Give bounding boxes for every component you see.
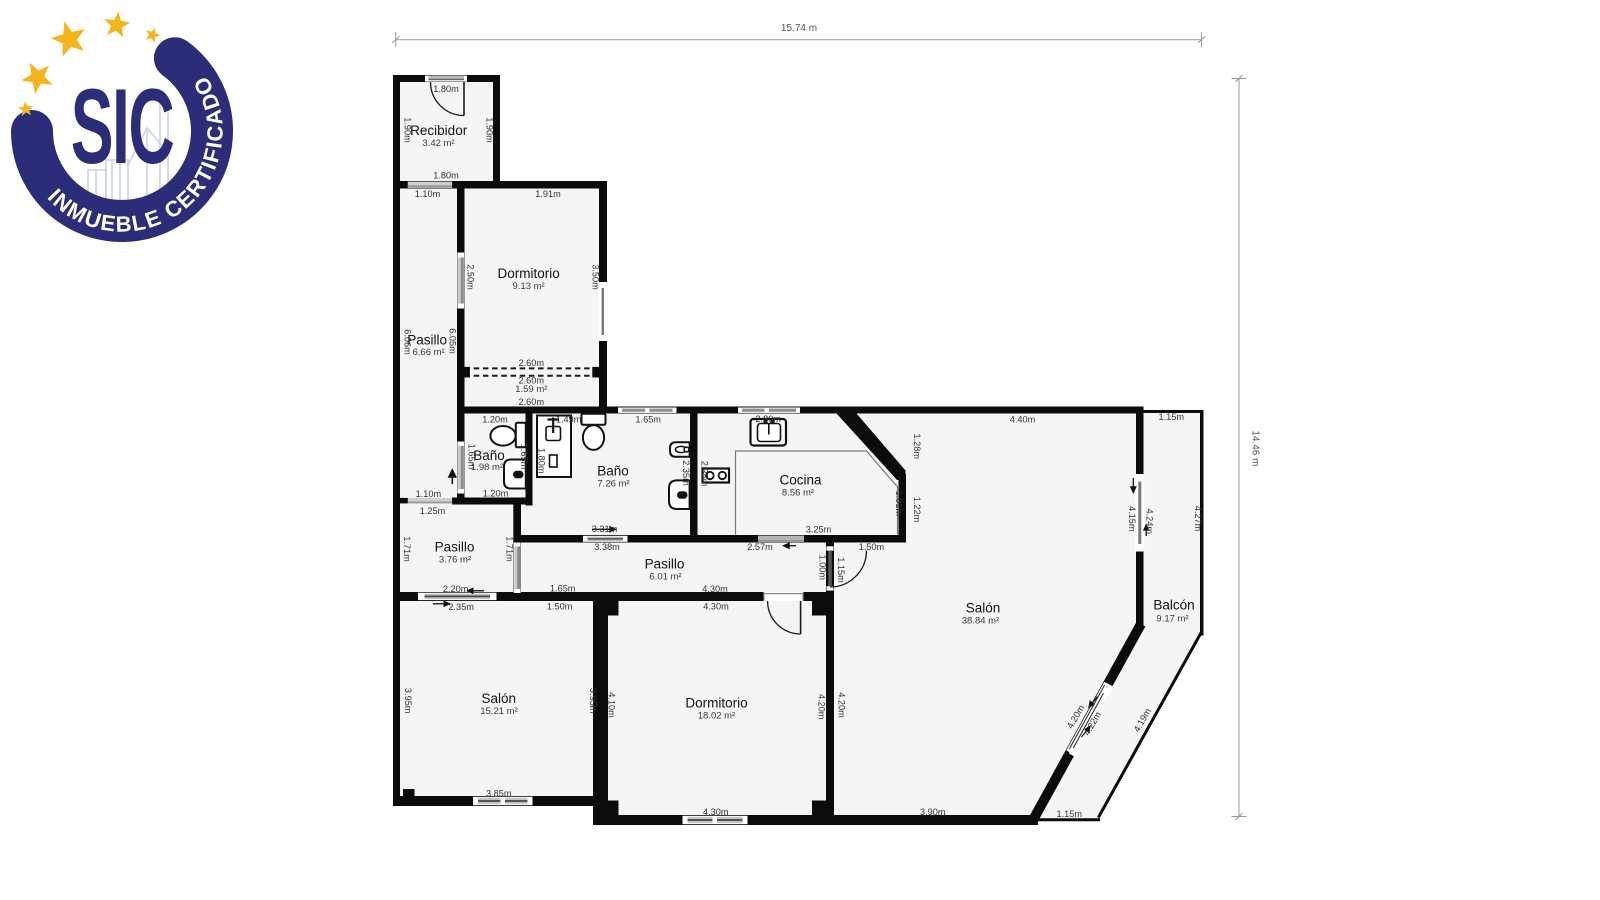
svg-text:8.56 m²: 8.56 m² — [782, 488, 814, 499]
svg-text:1.80m: 1.80m — [536, 448, 546, 474]
svg-text:1.22m: 1.22m — [912, 497, 922, 523]
svg-text:1.25m: 1.25m — [420, 506, 446, 516]
svg-text:1.10m: 1.10m — [416, 489, 442, 499]
svg-text:Baño: Baño — [597, 464, 629, 479]
svg-text:SIC: SIC — [71, 66, 174, 186]
svg-text:1.50m: 1.50m — [859, 542, 885, 552]
svg-text:4.15m: 4.15m — [1127, 506, 1137, 532]
svg-text:4.30m: 4.30m — [702, 584, 728, 594]
svg-text:Salón: Salón — [482, 691, 517, 706]
svg-text:1.20m: 1.20m — [482, 415, 508, 425]
svg-text:1.15m: 1.15m — [1057, 809, 1083, 819]
svg-text:2.60m: 2.60m — [519, 358, 545, 368]
svg-text:15.74 m: 15.74 m — [781, 23, 817, 34]
svg-text:3.95m: 3.95m — [403, 688, 413, 714]
svg-text:1.59 m²: 1.59 m² — [515, 384, 547, 395]
svg-text:1.28m: 1.28m — [912, 434, 922, 460]
svg-text:3.90m: 3.90m — [920, 807, 946, 817]
svg-text:18.02 m²: 18.02 m² — [698, 711, 736, 722]
svg-text:4.27m: 4.27m — [1193, 506, 1203, 532]
svg-text:1.71m: 1.71m — [402, 536, 412, 562]
svg-text:2.80m: 2.80m — [755, 414, 781, 424]
svg-text:Salón: Salón — [966, 601, 1001, 616]
svg-text:3.95m: 3.95m — [588, 688, 598, 714]
svg-text:3.85m: 3.85m — [486, 789, 512, 799]
svg-text:15.21 m²: 15.21 m² — [480, 706, 518, 717]
svg-text:2.50m: 2.50m — [466, 264, 476, 290]
svg-text:38.84 m²: 38.84 m² — [962, 616, 1000, 627]
svg-text:1.00m: 1.00m — [817, 555, 827, 581]
svg-text:1.71m: 1.71m — [505, 536, 515, 562]
svg-text:3.31m: 3.31m — [592, 524, 618, 534]
svg-text:Baño: Baño — [473, 448, 505, 463]
svg-text:2.35m: 2.35m — [700, 461, 710, 487]
svg-text:9.13 m²: 9.13 m² — [512, 281, 544, 292]
svg-text:4.20m: 4.20m — [817, 694, 827, 720]
svg-text:3.25m: 3.25m — [806, 525, 832, 535]
svg-text:7.26 m²: 7.26 m² — [597, 479, 629, 490]
svg-text:4.10m: 4.10m — [607, 692, 617, 718]
svg-text:1.50m: 1.50m — [547, 602, 573, 612]
svg-text:6.05m: 6.05m — [448, 328, 458, 354]
svg-text:Pasillo: Pasillo — [435, 540, 475, 555]
svg-text:6.01 m²: 6.01 m² — [649, 572, 681, 583]
svg-text:1.49m: 1.49m — [556, 415, 582, 425]
svg-text:9.17 m²: 9.17 m² — [1156, 614, 1188, 625]
svg-text:3.42 m²: 3.42 m² — [422, 138, 454, 149]
svg-text:2.35m: 2.35m — [448, 602, 474, 612]
svg-text:4.30m: 4.30m — [703, 602, 729, 612]
svg-text:1.80m: 1.80m — [433, 84, 459, 94]
svg-text:6.06m: 6.06m — [402, 329, 412, 355]
svg-text:1.91m: 1.91m — [535, 189, 561, 199]
svg-text:4.20m: 4.20m — [836, 692, 846, 718]
svg-text:3.76 m²: 3.76 m² — [439, 555, 471, 566]
svg-text:1.65m: 1.65m — [550, 584, 576, 594]
svg-text:1.15m: 1.15m — [836, 557, 846, 583]
svg-text:1.10m: 1.10m — [415, 189, 441, 199]
svg-text:2.20m: 2.20m — [443, 584, 469, 594]
svg-text:4.40m: 4.40m — [1010, 414, 1036, 424]
svg-text:Dormitorio: Dormitorio — [497, 266, 559, 281]
svg-text:14.46 m: 14.46 m — [1250, 430, 1261, 466]
svg-text:Pasillo: Pasillo — [645, 557, 685, 572]
svg-text:1.90m: 1.90m — [485, 117, 495, 143]
svg-text:Cocina: Cocina — [779, 473, 822, 488]
svg-text:2.35m: 2.35m — [681, 460, 691, 486]
svg-text:1.65m: 1.65m — [519, 444, 529, 470]
svg-text:1.65m: 1.65m — [635, 415, 661, 425]
svg-text:Dormitorio: Dormitorio — [685, 696, 747, 711]
svg-text:2.57m: 2.57m — [747, 542, 773, 552]
svg-text:4.24m: 4.24m — [1144, 509, 1154, 535]
svg-text:Recibidor: Recibidor — [410, 123, 468, 138]
svg-text:1.65m: 1.65m — [466, 444, 476, 470]
svg-text:4.30m: 4.30m — [703, 807, 729, 817]
svg-text:2.60m: 2.60m — [519, 397, 545, 407]
svg-text:3.50m: 3.50m — [591, 264, 601, 290]
svg-text:1.90m: 1.90m — [402, 117, 412, 143]
svg-text:6.66 m²: 6.66 m² — [412, 347, 444, 358]
svg-text:3.38m: 3.38m — [594, 542, 620, 552]
svg-text:1.15m: 1.15m — [1159, 412, 1185, 422]
svg-text:Balcón: Balcón — [1153, 598, 1194, 613]
svg-text:1.01m: 1.01m — [894, 491, 904, 517]
svg-text:1.80m: 1.80m — [433, 171, 459, 181]
svg-text:1.20m: 1.20m — [483, 488, 509, 498]
